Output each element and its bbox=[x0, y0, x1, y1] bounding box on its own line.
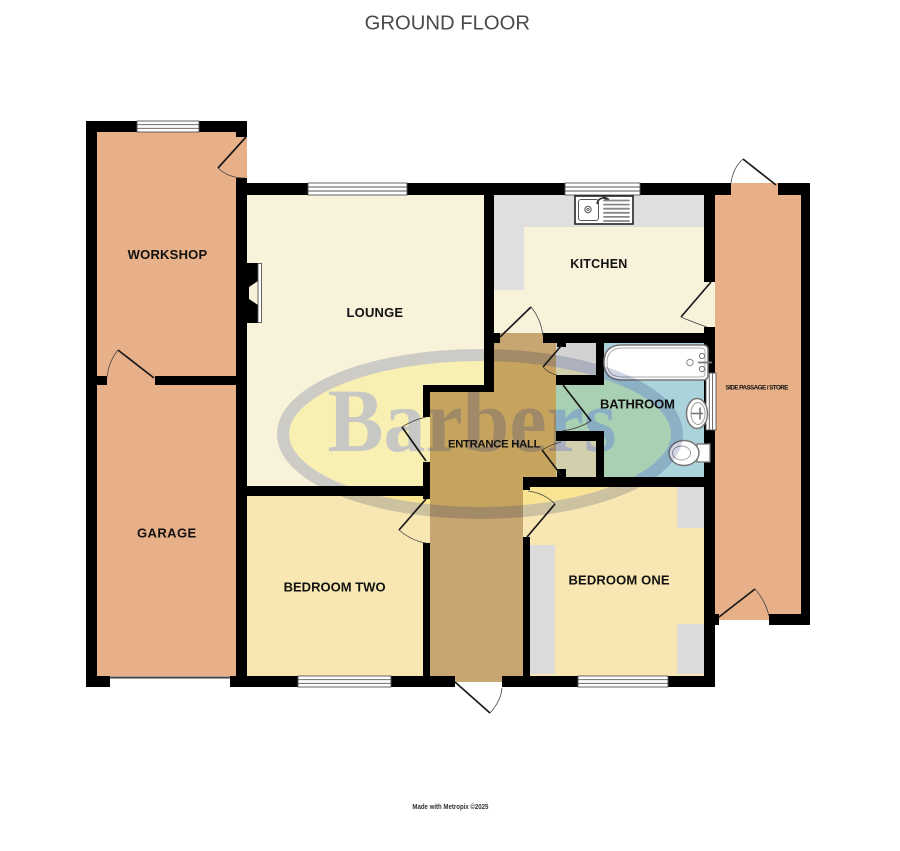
svg-text:GROUND FLOOR: GROUND FLOOR bbox=[365, 12, 530, 34]
svg-text:BATHROOM: BATHROOM bbox=[600, 397, 675, 412]
svg-text:BEDROOM TWO: BEDROOM TWO bbox=[284, 580, 386, 595]
svg-text:BEDROOM ONE: BEDROOM ONE bbox=[569, 573, 670, 588]
svg-text:ENTRANCE HALL: ENTRANCE HALL bbox=[448, 439, 541, 451]
svg-text:Made with Metropix ©2025: Made with Metropix ©2025 bbox=[412, 803, 488, 811]
svg-text:Barbers: Barbers bbox=[328, 372, 617, 471]
svg-text:GARAGE: GARAGE bbox=[137, 525, 197, 540]
svg-text:KITCHEN: KITCHEN bbox=[570, 257, 627, 271]
svg-text:LOUNGE: LOUNGE bbox=[347, 305, 404, 320]
svg-text:WORKSHOP: WORKSHOP bbox=[128, 247, 208, 262]
svg-text:SIDE PASSAGE / STORE: SIDE PASSAGE / STORE bbox=[726, 385, 789, 392]
